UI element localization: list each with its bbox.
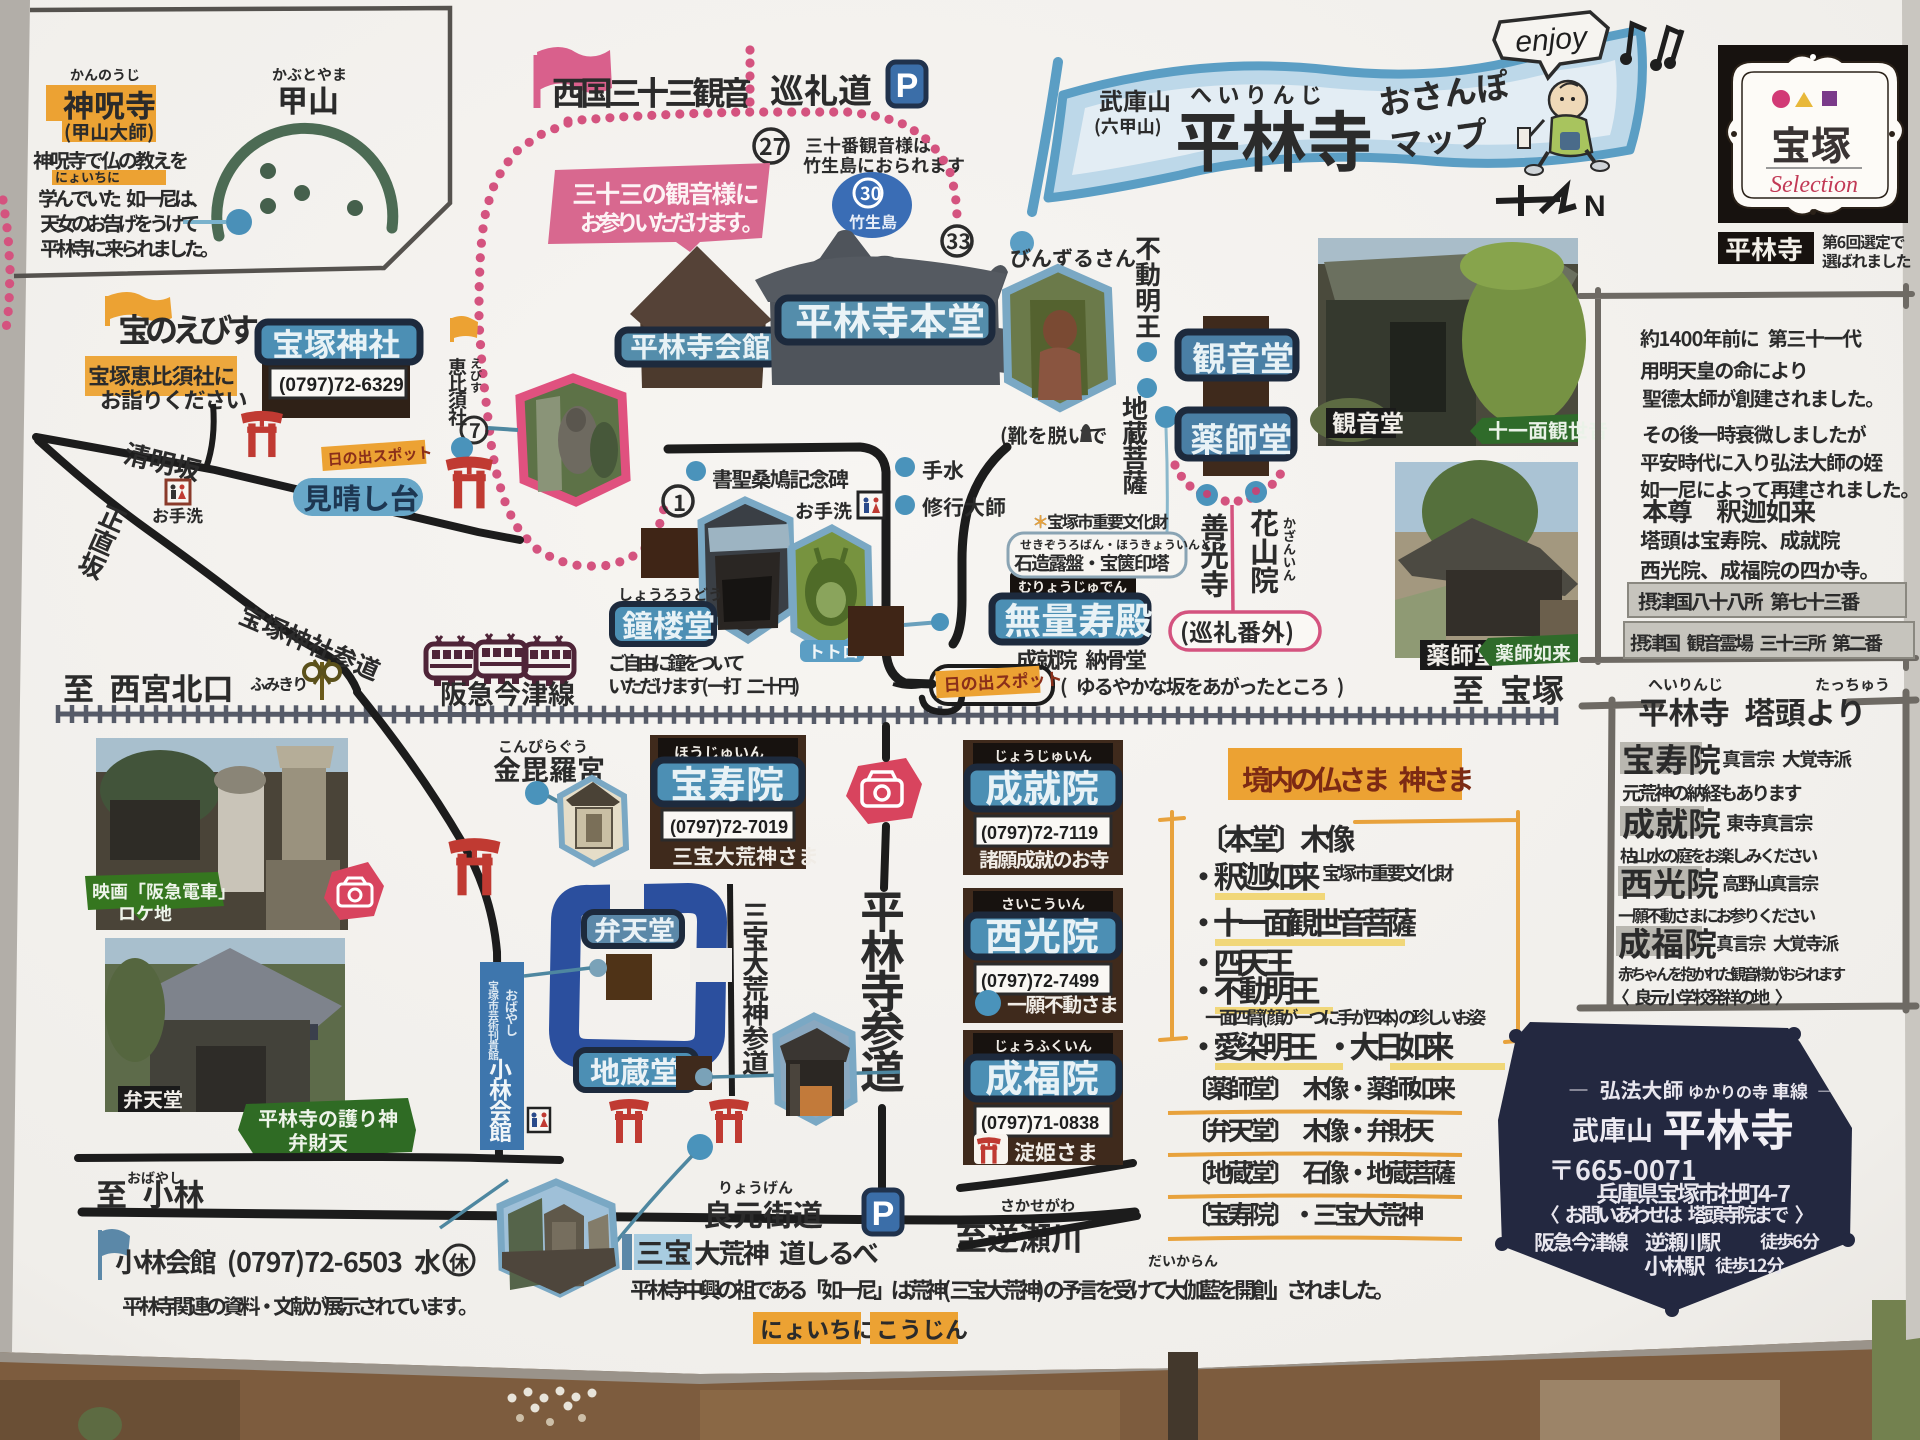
svg-text:(0797)72-7119: (0797)72-7119	[981, 823, 1098, 843]
svg-text:P: P	[872, 1195, 895, 1233]
svg-text:(0797)71-0838: (0797)71-0838	[981, 1113, 1099, 1133]
svg-text:(0797)72-7019: (0797)72-7019	[670, 817, 788, 837]
svg-text:(0797)72-6329: (0797)72-6329	[279, 375, 404, 396]
svg-text:P: P	[896, 67, 919, 105]
svg-text:enjoy: enjoy	[1514, 21, 1590, 59]
svg-text:(0797)72-7499: (0797)72-7499	[981, 971, 1099, 991]
svg-text:N: N	[1584, 190, 1606, 223]
svg-text:Selection: Selection	[1770, 172, 1858, 198]
